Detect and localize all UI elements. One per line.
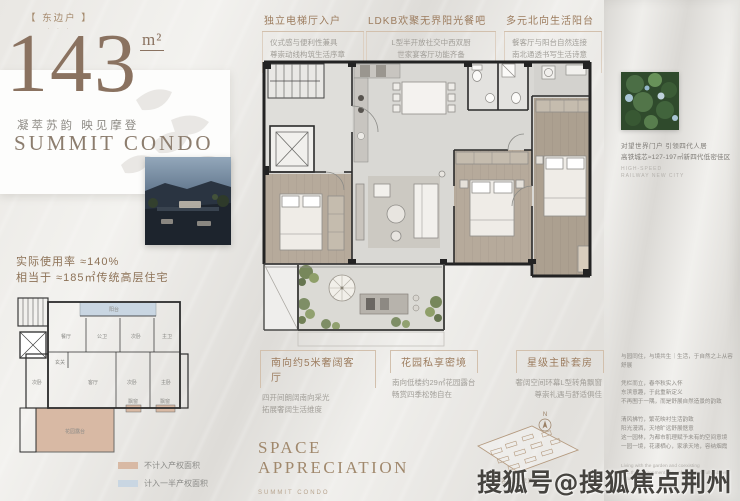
area-unit: m²	[140, 30, 164, 51]
mini-label-balcony: 阳台	[109, 306, 119, 313]
right-english-caption: HIGH-SPEED RAILWAY NEW CITY	[621, 166, 684, 180]
anno-desc: 奢阔空间环幕L型转角飘窗 尊崇礼遇与舒适俱佳	[494, 373, 604, 405]
stairs	[268, 64, 324, 98]
right-en-line2: RAILWAY NEW CITY	[621, 173, 684, 180]
poster: 【 东边户 】 · · · 143m² 凝萃苏韵 映见摩登 SUMMIT CON…	[0, 0, 740, 501]
anno-title: 南向约5米奢阔客厅	[260, 350, 376, 388]
mini-label-bed4: 次卧	[127, 379, 137, 386]
mini-label-dining: 餐厅	[61, 333, 71, 340]
svg-text:N: N	[543, 412, 547, 418]
poem-line: 阳光漫洒，天地旷远舒展惬意	[621, 425, 733, 434]
poem-line: 不再囿于一隅，而是舒展自然造景的韵致	[621, 398, 733, 407]
anno-line: 拓展奢阔生活维度	[262, 404, 374, 416]
usage-text: 实际使用率 ≈140% 相当于 ≈185㎡传统高层住宅	[16, 254, 168, 286]
anno-title: 多元北向生活阳台	[504, 12, 602, 32]
poem-line: 清风拂竹，繁花映衬生活韵致	[621, 416, 733, 425]
space-subtitle: SUMMIT CONDO	[258, 483, 409, 501]
summit-condo-title: SUMMIT CONDO	[14, 131, 214, 156]
mini-label-bath-public: 公卫	[97, 334, 107, 340]
anno-line: L型半开放社交中西双厨	[374, 37, 488, 49]
right-headline-2: 高铁城芯≈127-197㎡新四代低密佳区	[621, 151, 730, 161]
anno-title: 星级主卧套房	[516, 350, 604, 373]
anno-line: 尊崇礼遇与舒适俱佳	[496, 389, 602, 401]
poem-header: 与园同住，与境共生｜生活，于自然之上从容舒展	[621, 353, 733, 371]
mini-label-garden: 花园露台	[65, 428, 85, 435]
anno-title: 独立电梯厅入户	[262, 12, 364, 32]
anno-south-living: 南向约5米奢阔客厅 四开间朗阔南向采光 拓展奢阔生活维度	[260, 350, 376, 420]
space-line1: SPACE	[258, 438, 409, 458]
foliage-photo	[621, 72, 679, 130]
anno-title: LDKB欢聚无界阳光餐吧	[366, 12, 496, 32]
anno-title: 花园私享密境	[390, 350, 478, 373]
mini-label-bay1: 飘窗	[128, 398, 138, 405]
anno-line: 四开间朗阔南向采光	[262, 392, 374, 404]
bed-left	[280, 194, 344, 250]
anno-line: 餐客厅与阳台自然连接	[512, 37, 594, 49]
legend-swatch-blue	[118, 480, 138, 487]
usage-line2: 相当于 ≈185㎡传统高层住宅	[16, 270, 168, 286]
mini-label-bay2: 飘窗	[160, 398, 170, 405]
legend-swatch-tan	[118, 462, 138, 469]
right-panel: 对望世界门户 引领四代人居 高铁城芯≈127-197㎡新四代低密佳区 HIGH-…	[604, 0, 740, 501]
area-headline: 143m²	[6, 16, 164, 112]
legend-label-blue: 计入一半产权面积	[144, 478, 208, 489]
mini-label-bed3: 次卧	[32, 379, 42, 386]
dining-table	[393, 82, 455, 114]
right-en-line1: HIGH-SPEED	[621, 166, 684, 173]
mini-label-bed2: 次卧	[131, 333, 141, 340]
mini-label-master: 主卧	[161, 379, 171, 386]
right-headline-1: 对望世界门户 引领四代人居	[621, 140, 707, 150]
usage-line1: 实际使用率 ≈140%	[16, 254, 168, 270]
space-line2: APPRECIATION	[258, 458, 409, 478]
area-number: 143	[6, 17, 138, 110]
poem-line: 凭栏而立，春华秋实入怀	[621, 380, 733, 389]
legend-row-blue: 计入一半产权面积	[118, 478, 208, 489]
mini-label-living: 客厅	[88, 379, 98, 386]
poem-block: 与园同住，与境共生｜生活，于自然之上从容舒展 凭栏而立，春华秋实入怀 东滨意趣，…	[621, 353, 733, 452]
mini-label-foyer: 玄关	[55, 359, 65, 366]
mini-stairs	[18, 298, 48, 326]
main-floorplan	[256, 56, 596, 392]
anno-line: 仪式感与便利性兼具	[270, 37, 356, 49]
anno-line: 奢阔空间环幕L型转角飘窗	[496, 377, 602, 389]
watermark: 搜狐号@搜狐焦点荆州站	[477, 463, 740, 501]
legend-label-tan: 不计入产权面积	[144, 460, 200, 471]
anno-master-suite: 星级主卧套房 奢阔空间环幕L型转角飘窗 尊崇礼遇与舒适俱佳	[494, 350, 604, 405]
legend-row-tan: 不计入产权面积	[118, 460, 208, 471]
umbrella	[329, 275, 355, 301]
terrace-photo	[145, 157, 231, 245]
terrace-eave	[298, 332, 444, 346]
poem-line: 东滨意趣，于此重新定义	[621, 389, 733, 398]
anno-desc: 四开间朗阔南向采光 拓展奢阔生活维度	[260, 388, 376, 420]
poem-line: 这一园林，为都市肌理赋予未有的空间意境	[621, 434, 733, 443]
mini-floorplan: 阳台 餐厅 公卫 次卧 主卫 玄关 次卧 客厅 次卧 主卧 飘窗 飘窗 花园露台	[8, 296, 200, 460]
north-arrow-icon: N	[539, 412, 551, 431]
poem-line: 一园一境，花漾栖心，家承天地，容纳烟霞	[621, 443, 733, 452]
mini-label-bath-master: 主卫	[162, 333, 172, 340]
space-appreciation-title: SPACE APPRECIATION SUMMIT CONDO	[258, 438, 409, 501]
elevator	[270, 126, 314, 172]
plan-legend: 不计入产权面积 计入一半产权面积	[118, 460, 208, 496]
